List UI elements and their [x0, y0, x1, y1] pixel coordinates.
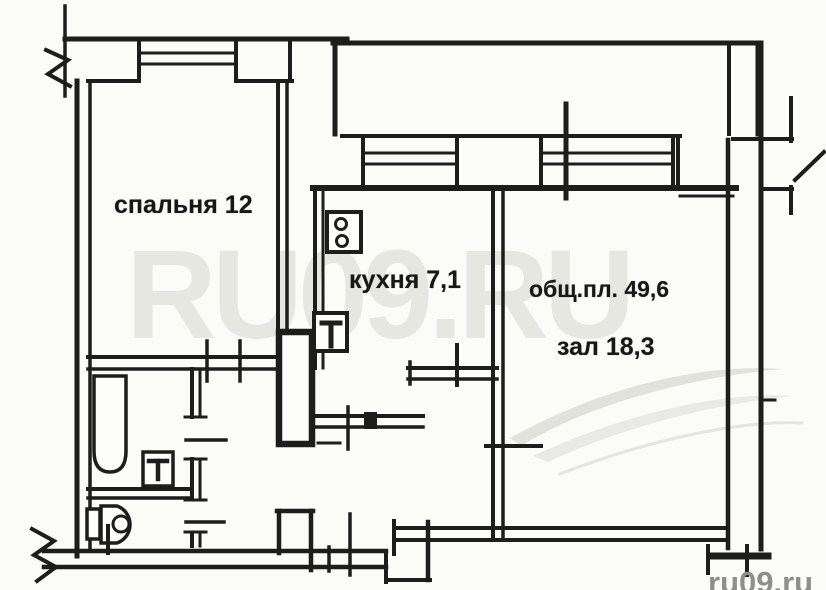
bedroom-window — [139, 41, 236, 81]
exterior-wall-right — [728, 43, 824, 549]
floor-plan-drawing — [0, 0, 826, 590]
hall-walls — [398, 188, 768, 575]
washbasin-icon — [143, 452, 173, 486]
floor-plan: RU09.RU — [0, 0, 826, 590]
wall-pillar — [279, 332, 312, 444]
total-area-label: общ.пл. 49,6 — [529, 276, 669, 303]
balcony — [333, 43, 760, 136]
window-strip — [313, 104, 736, 198]
hall-window — [541, 136, 673, 186]
exterior-wall-bottom — [32, 526, 386, 581]
entrance — [277, 511, 430, 582]
stove-icon — [327, 212, 361, 252]
watermark-swoosh — [510, 368, 802, 474]
room-label-kitchen: кухня 7,1 — [349, 266, 461, 295]
exterior-wall-left — [77, 81, 90, 556]
corridor-wall — [313, 407, 423, 449]
room-label-hall: зал 18,3 — [557, 333, 655, 362]
wall-break-right — [795, 152, 824, 180]
kitchen-sink-icon — [314, 313, 347, 351]
bedroom-door — [207, 341, 240, 381]
watermark-corner: ru09.ru — [708, 567, 813, 590]
wall-break-bottom-left — [32, 529, 56, 581]
kitchen-window — [363, 136, 457, 186]
room-label-bedroom: спальня 12 — [114, 191, 253, 220]
bathtub-icon — [94, 376, 126, 472]
bedroom-walls — [88, 81, 287, 381]
